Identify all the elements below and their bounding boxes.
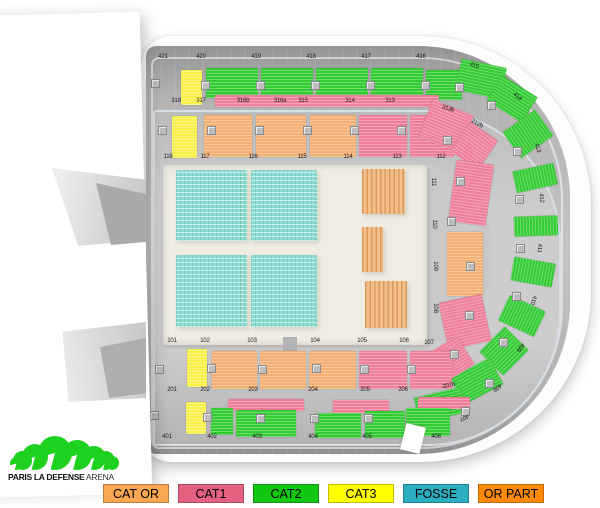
seating-section[interactable] [315,413,361,438]
section-label: 316b [237,98,250,104]
entrance-square [443,136,452,145]
entrance-square [487,101,496,110]
seating-section[interactable] [447,232,483,296]
entrance-square [499,338,508,347]
section-label: 318 [171,98,180,104]
stage-wing [0,12,152,499]
section-label: 412 [538,193,545,203]
category-legend: CAT ORCAT1CAT2CAT3FOSSEOR PART [103,484,544,503]
seating-section[interactable] [362,169,405,214]
section-label: 102 [200,338,209,344]
entrance-square [258,365,267,374]
legend-item-cat2: CAT2 [253,484,319,503]
entrance-square [466,262,475,271]
legend-item-cat1: CAT1 [178,484,244,503]
section-label: 112 [437,154,446,160]
legend-item-cat-or: CAT OR [103,484,169,503]
section-label: 401 [162,434,171,440]
legend-item-cat3: CAT3 [328,484,394,503]
seating-section[interactable] [256,115,306,157]
entrance-square [450,350,459,359]
entrance-square [512,292,521,301]
logo-arcs-icon [10,430,109,470]
section-label: 418 [306,54,315,60]
seating-section[interactable] [251,170,317,241]
entrance-square [151,79,160,88]
entrance-square [397,126,406,135]
section-label: 115 [298,154,307,160]
section-label: 205 [360,387,369,393]
seating-section[interactable] [176,170,247,241]
entrance-square [447,217,456,226]
section-label: 107 [424,340,433,346]
section-label: 106 [399,338,408,344]
section-label: 419 [251,54,260,60]
entrance-square [158,126,167,135]
seating-section[interactable] [365,281,407,328]
section-label: 203 [248,387,257,393]
entrance-square [150,411,159,420]
section-label: 314 [345,98,354,104]
seating-section[interactable] [251,255,317,327]
entrance-square [366,81,375,90]
entrance-square [207,364,216,373]
section-label: 105 [357,338,366,344]
entrance-square [256,81,265,90]
logo-arc-icon [105,456,119,470]
section-label: 111 [430,178,436,187]
legend-item-fosse: FOSSE [403,484,469,503]
entrance-square [256,414,265,423]
section-label: 315 [298,98,307,104]
entrance-square [360,365,369,374]
venue-name: PARIS LA DEFENSE [8,472,84,482]
legend-item-or-part: OR PART [478,484,544,503]
section-label: 201 [167,387,176,393]
section-label: 114 [344,154,353,160]
section-label: 313 [385,98,394,104]
entrance-square [456,177,465,186]
section-label: 116 [249,154,258,160]
section-label: 206 [398,387,407,393]
seating-section[interactable] [316,68,368,98]
section-label: 421 [158,54,167,60]
section-label: 109 [432,261,438,270]
section-label: 110 [431,220,437,229]
seating-section[interactable] [371,68,423,98]
entrance-square [255,126,264,135]
entrance-square [201,81,210,90]
section-label: 317 [196,98,205,104]
entrance-square [311,81,320,90]
section-label: 101 [167,338,176,344]
section-label: 417 [361,54,370,60]
entrance-square [303,126,312,135]
entrance-square [312,364,321,373]
seating-section[interactable] [212,351,257,389]
entrance-square [407,365,416,374]
section-label: 118 [164,154,173,160]
seating-section[interactable] [187,349,207,387]
venue-logo-text: PARIS LA DEFENSE ARENA [8,472,114,482]
seating-section[interactable] [362,227,383,272]
seating-section[interactable] [261,68,313,98]
entrance-square [516,244,525,253]
section-label: 403 [252,434,261,440]
section-label: 113 [393,154,402,160]
seating-section[interactable] [176,255,247,327]
seating-section[interactable] [310,115,356,157]
entrance-square [515,195,524,204]
arena-seat-map: 4214204194184174164154144134124114104094… [0,0,600,508]
section-label: 420 [196,54,205,60]
entrance-square [350,126,359,135]
venue-suffix: ARENA [86,472,114,482]
entrance-square [513,147,522,156]
seating-section[interactable] [359,115,407,157]
entrance-square [364,414,373,423]
entrance-square [310,414,319,423]
seating-section[interactable] [236,410,296,437]
section-label: 411 [536,243,543,252]
entrance-square [203,413,212,422]
section-label: 108 [432,303,438,312]
seating-section[interactable] [206,68,258,98]
section-label: 406 [431,434,440,440]
seating-section[interactable] [204,115,252,157]
section-label: 103 [247,338,256,344]
section-label: 204 [308,387,317,393]
section-label: 104 [310,338,319,344]
entrance-square [155,365,164,374]
section-label: 202 [200,387,209,393]
section-label: 117 [201,154,210,160]
entrance-square [421,81,430,90]
entrance-square [207,126,216,135]
seating-section[interactable] [514,215,559,237]
section-label: 416 [416,54,425,60]
section-label: 402 [207,434,216,440]
venue-logo: PARIS LA DEFENSE ARENA [8,430,128,488]
entrance-square [465,311,474,320]
section-label: 316a [274,98,287,104]
section-label: 405 [362,434,371,440]
section-label: 404 [308,434,317,440]
seating-section[interactable] [211,408,233,435]
seating-section[interactable] [172,116,197,158]
entrance-square [455,83,464,92]
